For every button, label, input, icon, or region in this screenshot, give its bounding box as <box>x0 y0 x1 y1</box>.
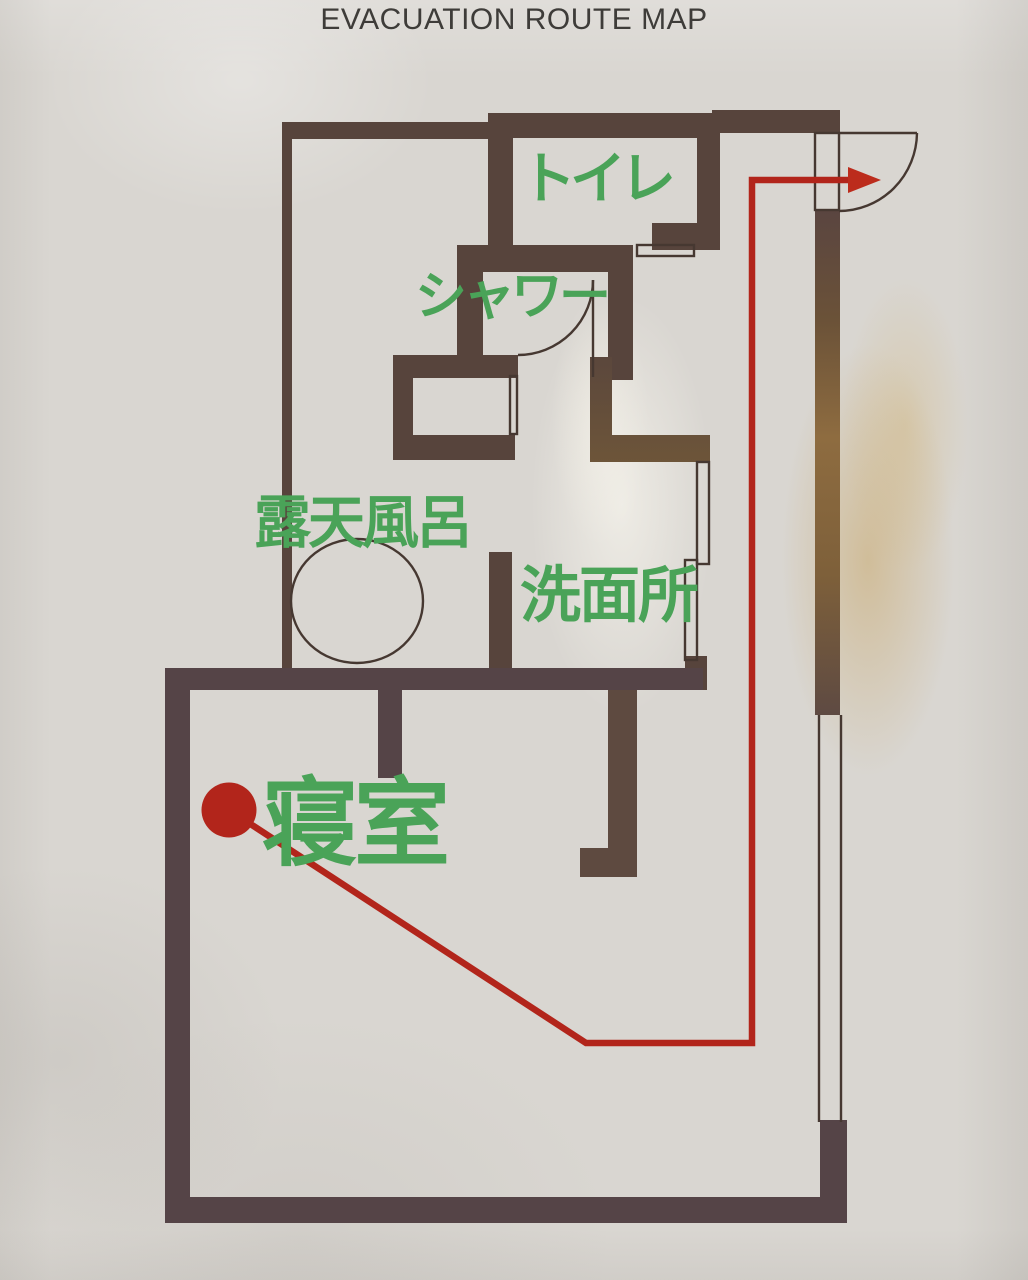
wall-washroom-ne-horizontal <box>590 435 710 462</box>
wall-right-outer-upper <box>815 210 840 715</box>
route-arrowhead-icon <box>848 167 881 193</box>
wall-top-right <box>712 110 840 133</box>
wall-bottom-outer <box>165 1197 847 1223</box>
room-label-toilet: トイレ <box>520 151 670 209</box>
room-label-open-air-bath: 露天風呂 <box>254 494 470 553</box>
wall-toilet-left <box>488 113 513 257</box>
wall-right-outer-lower <box>820 1120 847 1223</box>
wall-bedroom-stub <box>378 690 402 778</box>
floor-plan-drawing <box>0 0 1028 1280</box>
wall-top-left <box>282 122 492 139</box>
washroom-entry-door <box>510 376 517 434</box>
room-label-shower: シャワー <box>415 271 607 325</box>
wall-washroom-left <box>489 552 512 668</box>
open-air-bath-tub <box>291 539 423 663</box>
room-label-washroom: 洗面所 <box>520 564 697 627</box>
route-start-dot <box>202 783 257 838</box>
evacuation-route-map-photo: EVACUATION ROUTE MAP <box>0 0 1028 1280</box>
wall-corridor-bottom <box>393 435 515 460</box>
exit-door-jamb <box>815 133 839 210</box>
wall-bedroom-left <box>165 668 190 1223</box>
wall-toilet-right <box>697 133 720 250</box>
washroom-window-upper <box>697 462 709 564</box>
room-label-bedroom: 寝室 <box>262 775 446 875</box>
wall-bedroom-top <box>165 668 703 690</box>
wall-bedroom-l-stub-vertical <box>608 690 637 850</box>
wall-top-mid <box>488 113 720 138</box>
wall-bedroom-l-stub-foot <box>580 848 637 877</box>
